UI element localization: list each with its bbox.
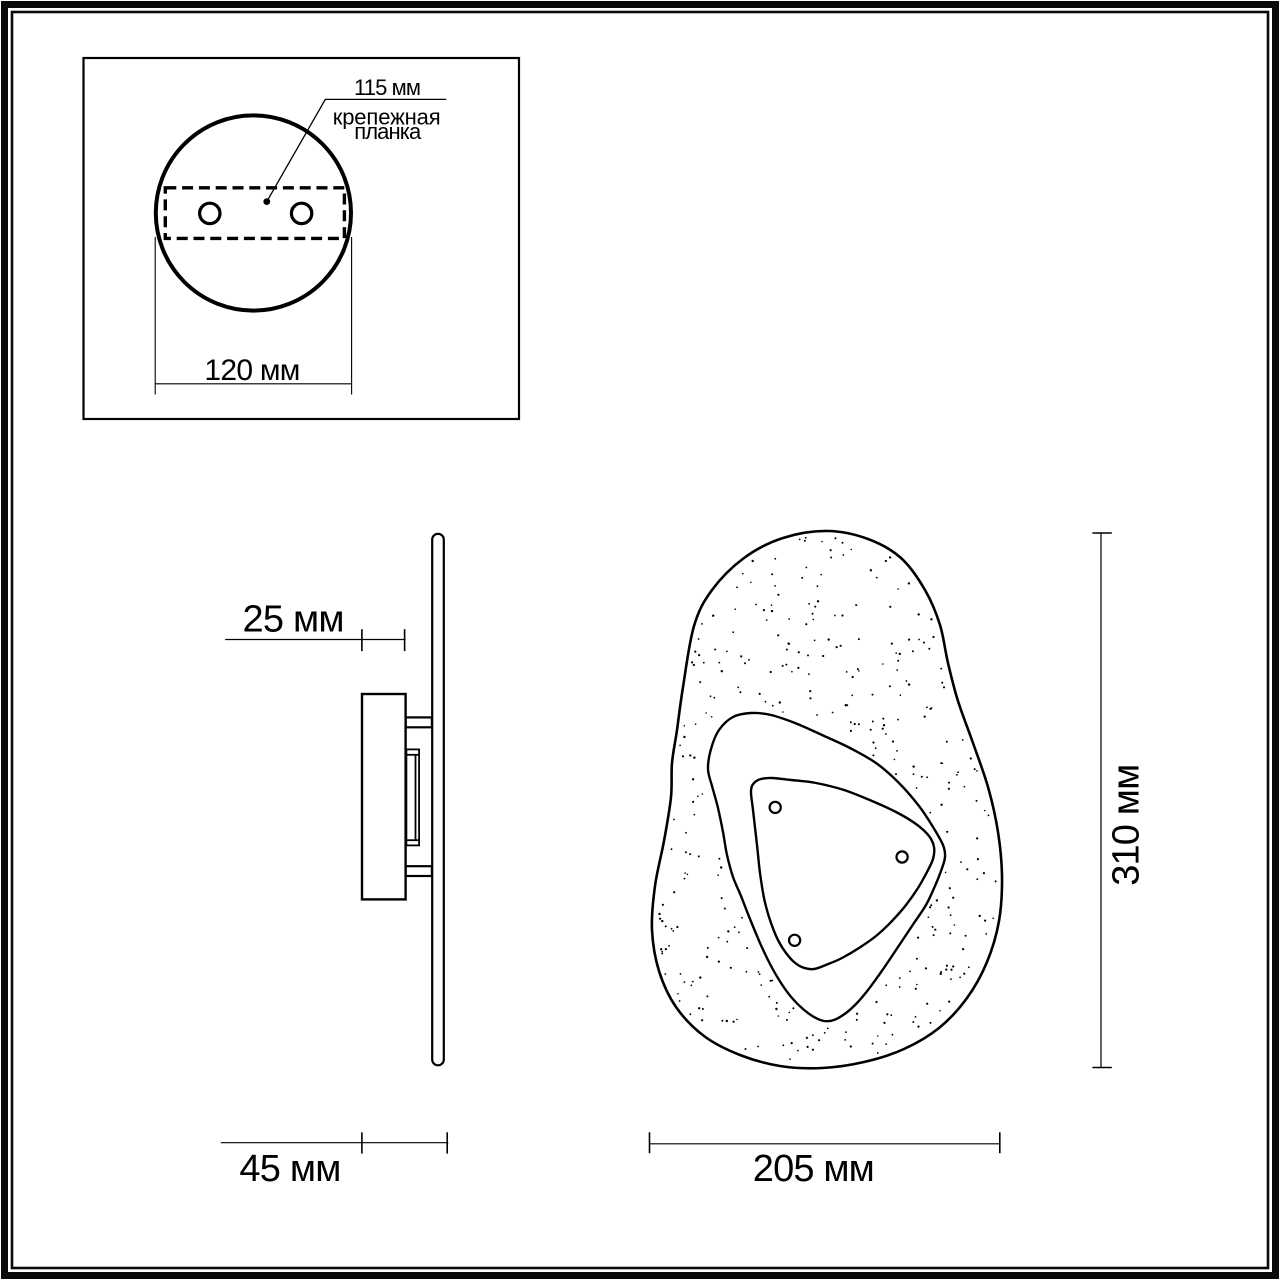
svg-text:25 мм: 25 мм [243, 599, 345, 641]
svg-text:45 мм: 45 мм [239, 1148, 341, 1190]
svg-text:115 мм: 115 мм [354, 75, 421, 100]
svg-text:120 мм: 120 мм [204, 354, 300, 387]
svg-text:планка: планка [354, 119, 422, 144]
svg-text:205 мм: 205 мм [753, 1148, 875, 1190]
svg-text:310 мм: 310 мм [1106, 764, 1148, 886]
